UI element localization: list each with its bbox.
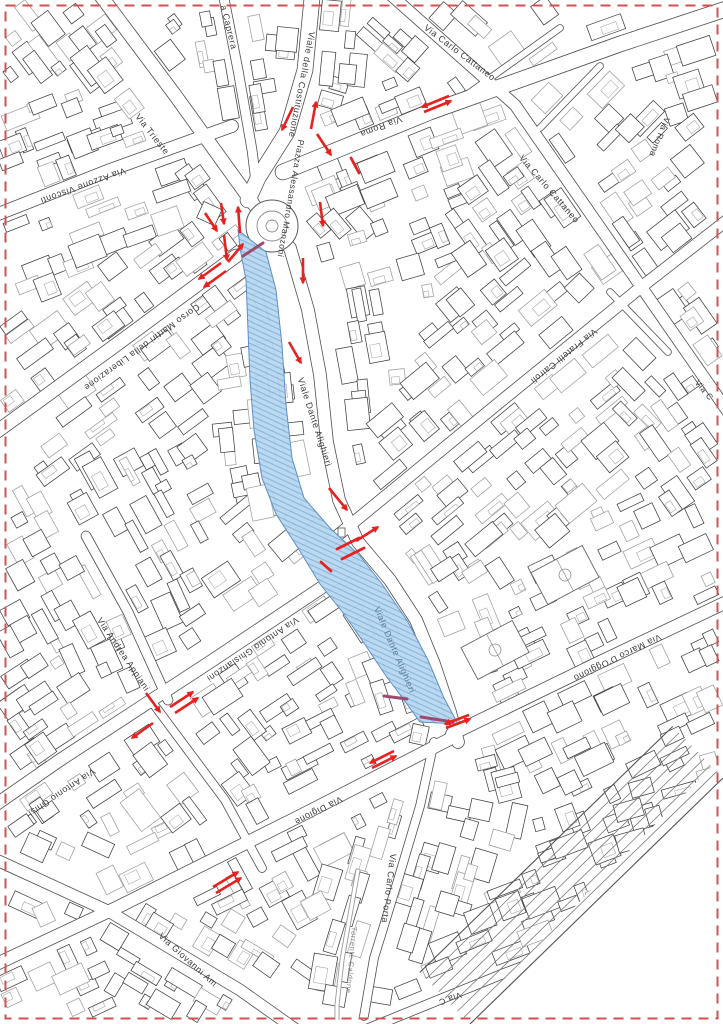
bus-stop-icon bbox=[338, 528, 345, 537]
traffic-arrow-icon bbox=[221, 203, 224, 224]
map-sheet: Via Triestea CapreraViale della Costituz… bbox=[0, 0, 723, 1024]
traffic-arrow-icon bbox=[370, 751, 394, 763]
map-canvas: Via Triestea CapreraViale della Costituz… bbox=[0, 0, 723, 1024]
traffic-arrow-icon bbox=[289, 342, 301, 363]
street-label: a Caprera bbox=[219, 4, 240, 50]
traffic-arrow-icon bbox=[311, 102, 316, 129]
